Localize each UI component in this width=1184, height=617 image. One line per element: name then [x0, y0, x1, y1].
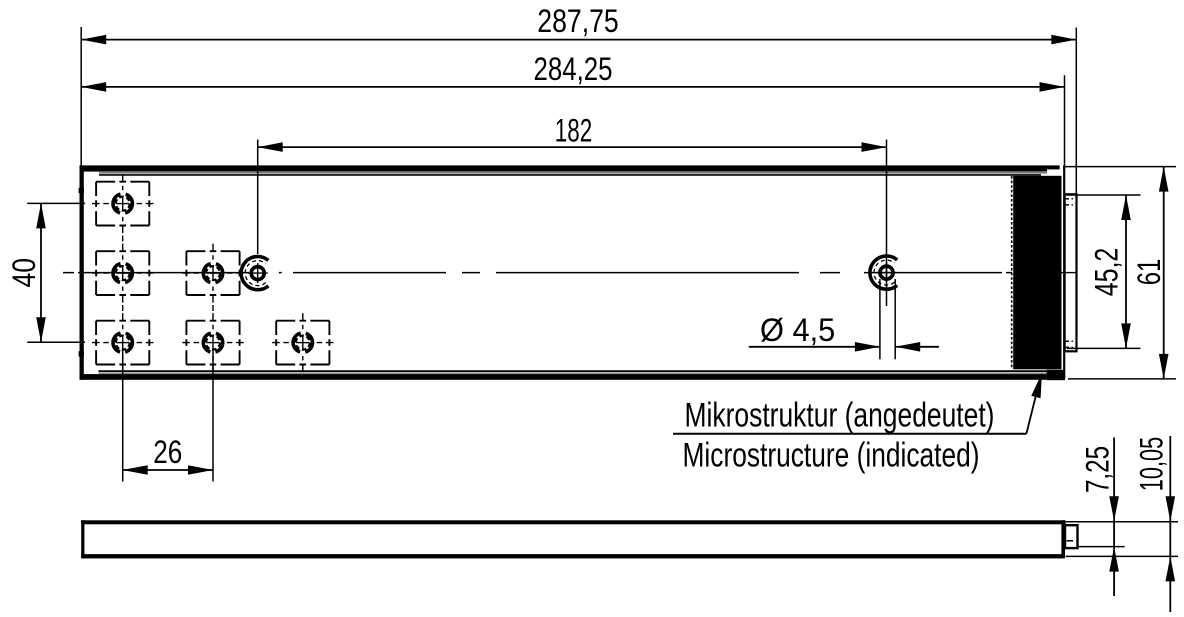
svg-text:182: 182: [555, 113, 592, 149]
svg-text:40: 40: [6, 258, 42, 288]
svg-text:284,25: 284,25: [534, 51, 613, 87]
svg-text:61: 61: [1131, 259, 1167, 286]
svg-text:Mikrostruktur (angedeutet): Mikrostruktur (angedeutet): [685, 397, 995, 435]
svg-text:26: 26: [153, 434, 182, 470]
svg-text:45,2: 45,2: [1089, 248, 1125, 297]
svg-text:287,75: 287,75: [537, 3, 619, 39]
svg-text:10,05: 10,05: [1134, 437, 1170, 491]
svg-text:Ø 4,5: Ø 4,5: [760, 312, 835, 348]
svg-text:7,25: 7,25: [1080, 446, 1116, 493]
svg-text:Microstructure (indicated): Microstructure (indicated): [683, 437, 980, 475]
